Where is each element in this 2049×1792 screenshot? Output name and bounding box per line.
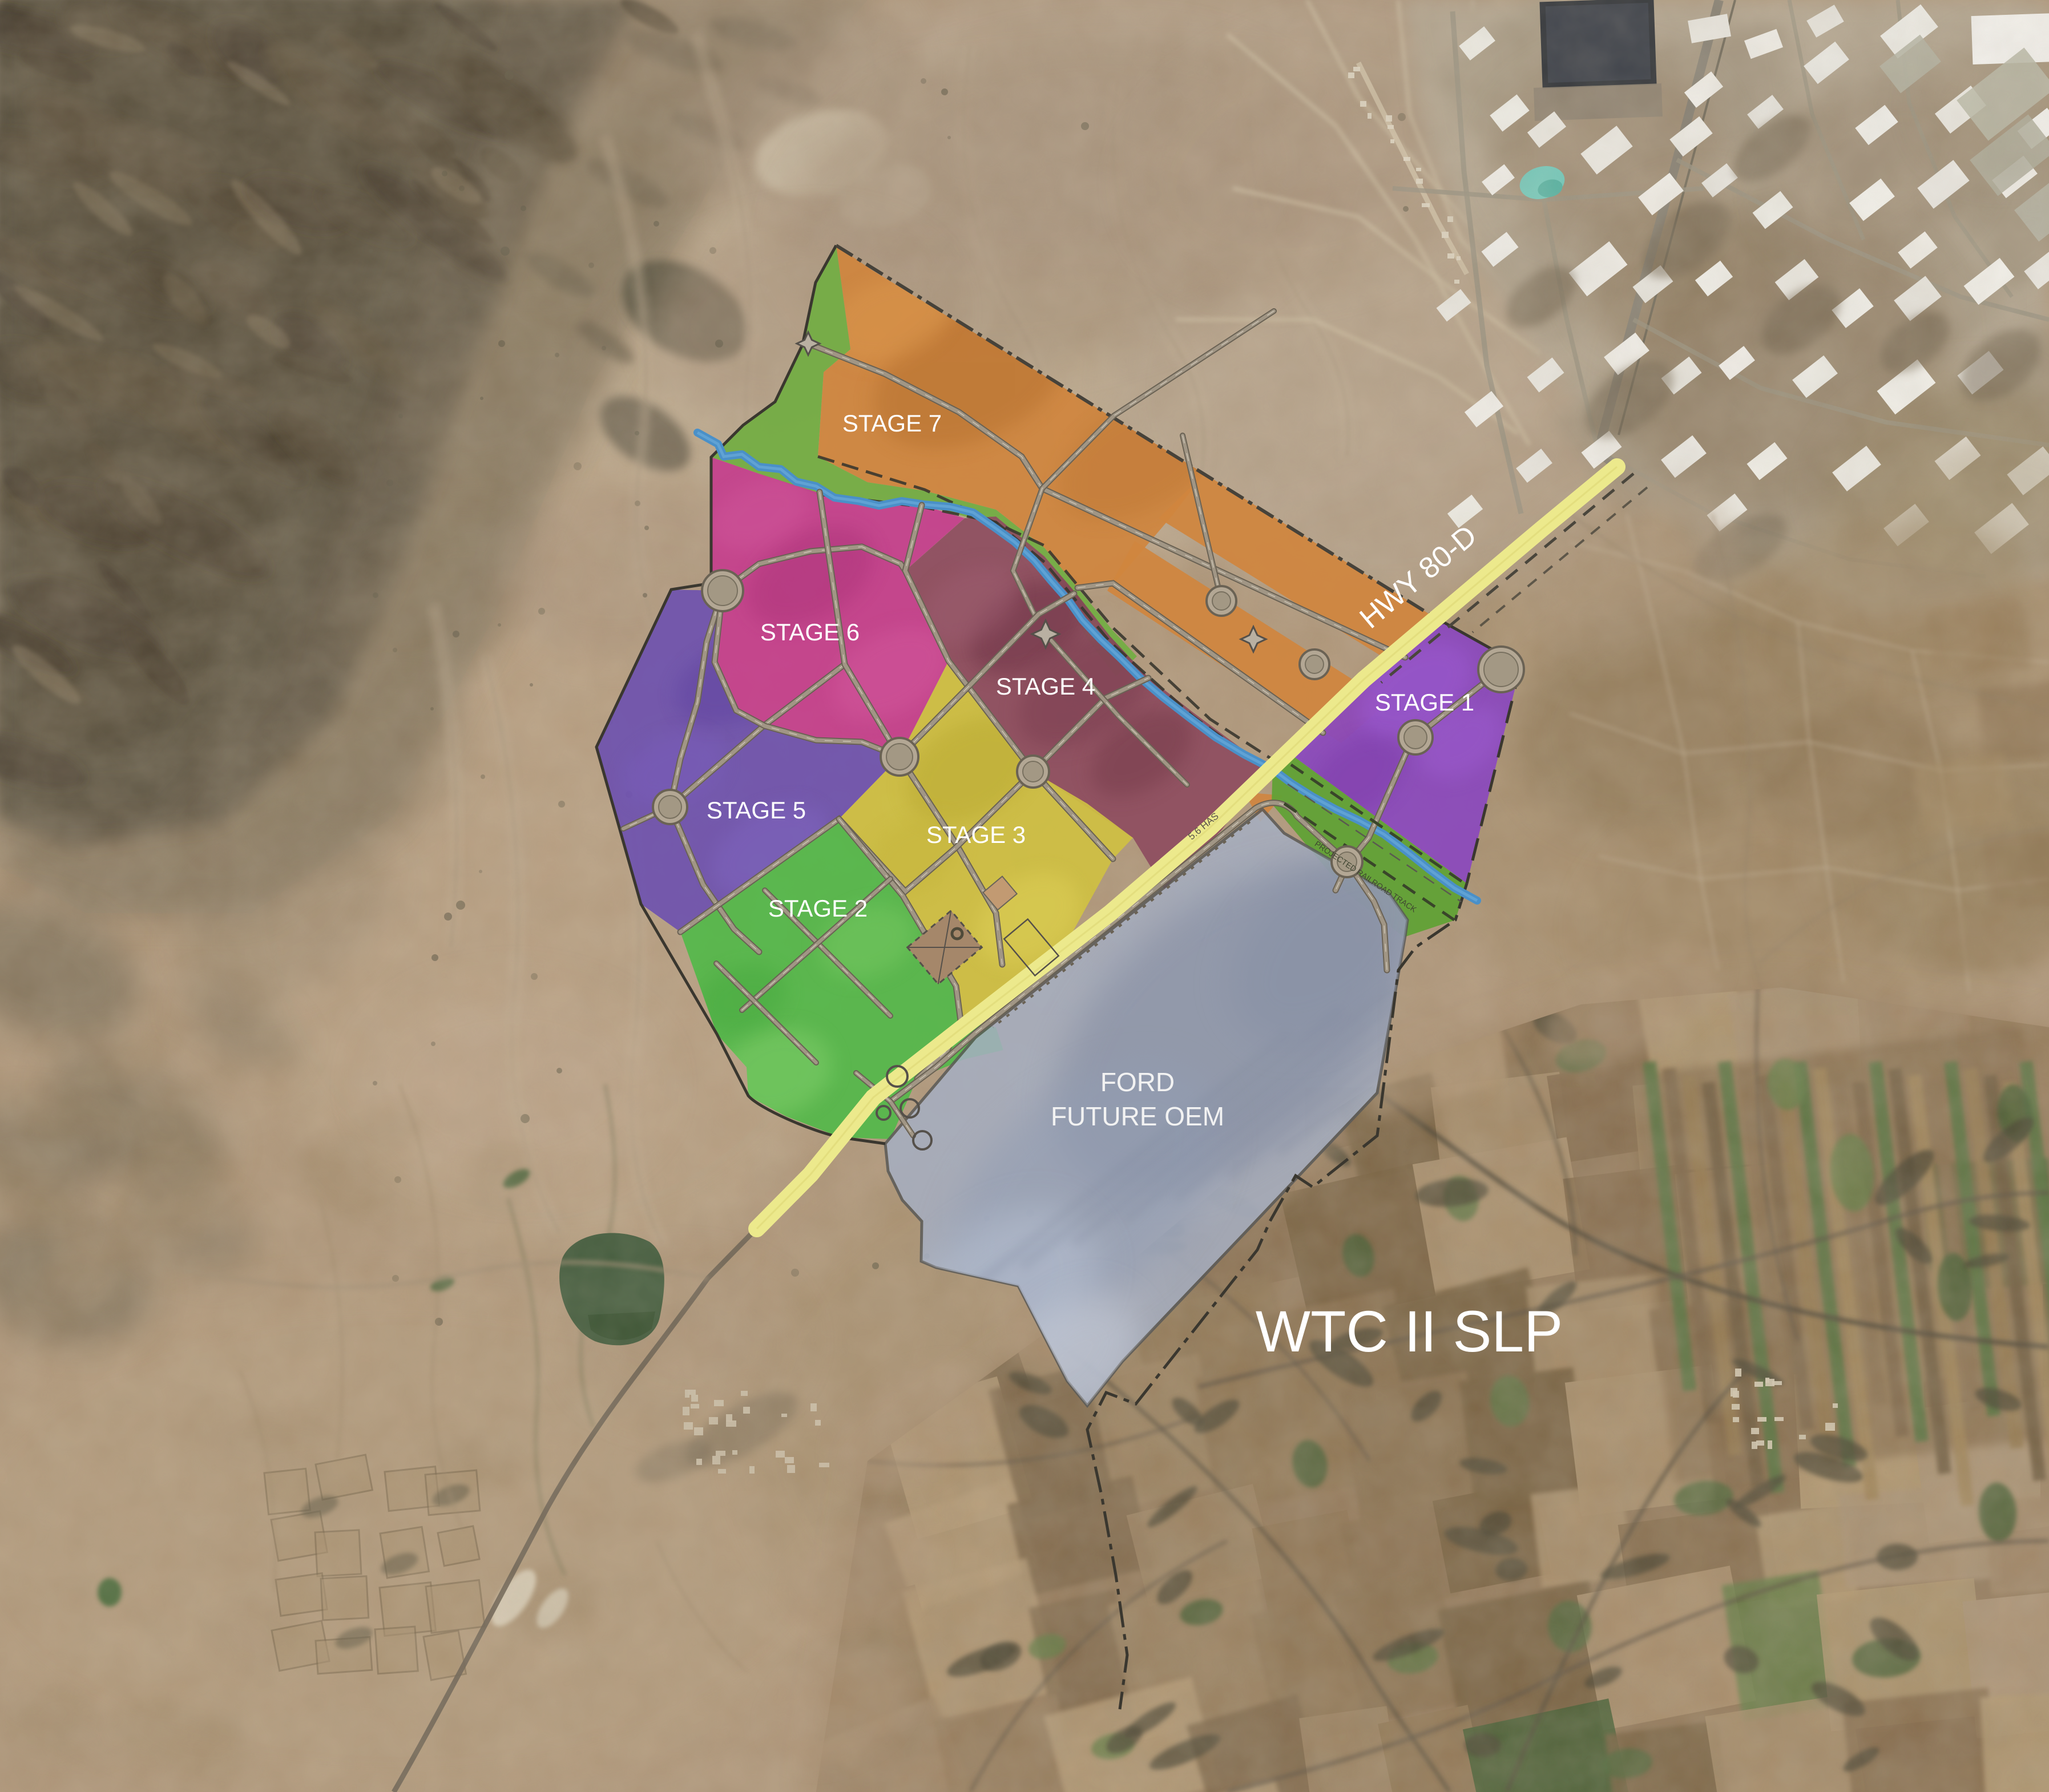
svg-text:STAGE 6: STAGE 6 <box>760 619 860 645</box>
svg-text:STAGE 7: STAGE 7 <box>842 410 942 437</box>
svg-text:FUTURE OEM: FUTURE OEM <box>1051 1101 1224 1131</box>
svg-text:FORD: FORD <box>1100 1067 1175 1097</box>
svg-text:STAGE 2: STAGE 2 <box>768 895 868 922</box>
svg-text:WTC II SLP: WTC II SLP <box>1256 1299 1563 1364</box>
svg-text:STAGE 3: STAGE 3 <box>926 821 1026 848</box>
svg-text:STAGE 1: STAGE 1 <box>1375 689 1474 716</box>
svg-text:STAGE 4: STAGE 4 <box>996 673 1095 700</box>
svg-text:STAGE 5: STAGE 5 <box>707 797 806 824</box>
